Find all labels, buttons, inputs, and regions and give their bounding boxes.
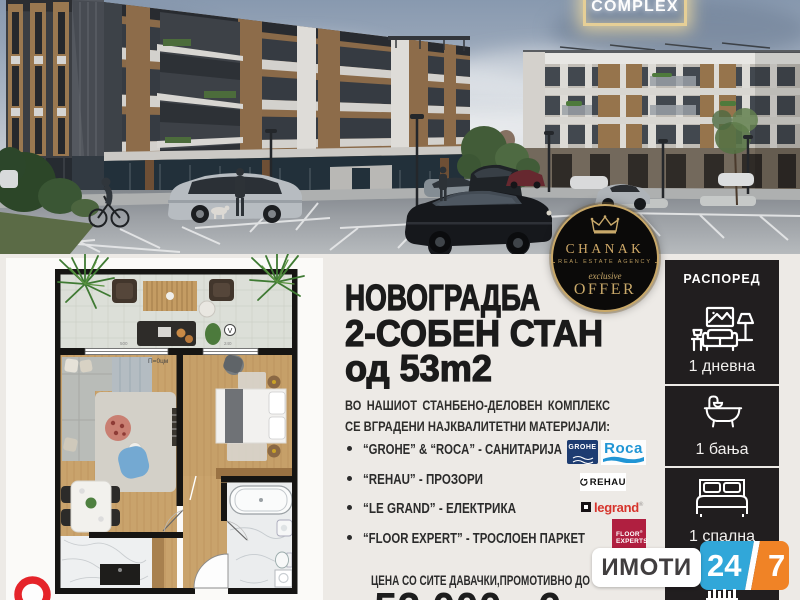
svg-text:V: V — [228, 328, 233, 335]
svg-text:500: 500 — [120, 341, 128, 346]
svg-text:240: 240 — [224, 341, 232, 346]
svg-text:П=0цм: П=0цм — [148, 358, 169, 365]
